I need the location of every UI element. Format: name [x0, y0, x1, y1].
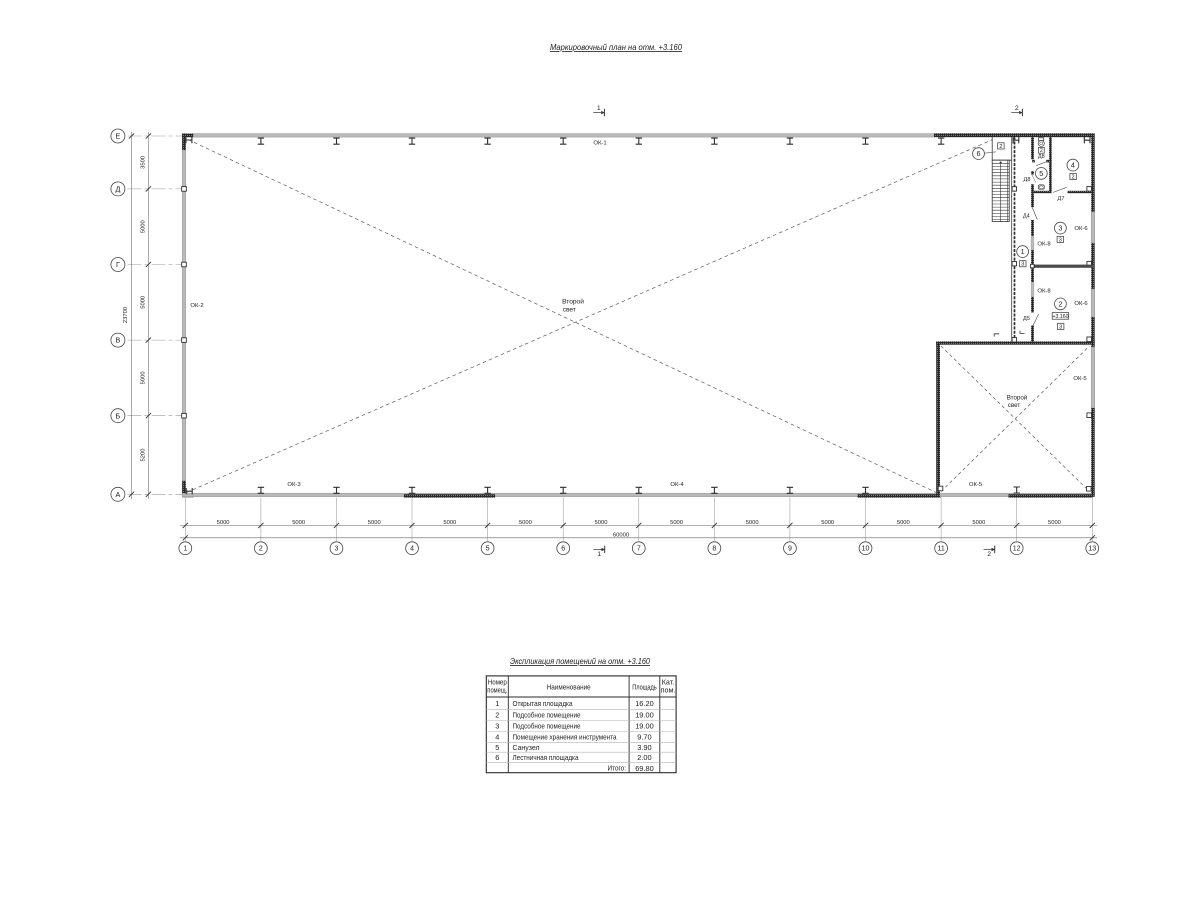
svg-text:Е: Е — [116, 132, 121, 141]
svg-text:Маркировочный план на отм. +3.: Маркировочный план на отм. +3.160 — [550, 43, 682, 52]
svg-text:2: 2 — [999, 144, 1002, 150]
svg-text:ОК-2: ОК-2 — [190, 303, 203, 309]
svg-text:Д7: Д7 — [1058, 196, 1065, 202]
svg-text:10: 10 — [862, 546, 870, 553]
svg-text:Лестничная площадка: Лестничная площадка — [513, 753, 580, 762]
svg-text:5000: 5000 — [519, 520, 532, 526]
svg-text:5000: 5000 — [140, 371, 146, 384]
svg-text:ОК-8: ОК-8 — [1037, 242, 1051, 248]
svg-text:8: 8 — [712, 546, 716, 553]
svg-text:Д4: Д4 — [1023, 213, 1030, 219]
svg-text:Г: Г — [116, 260, 120, 269]
svg-text:2: 2 — [259, 546, 263, 553]
svg-text:Площадь: Площадь — [632, 683, 657, 692]
svg-text:5000: 5000 — [897, 520, 910, 526]
svg-text:Подсобное помещение: Подсобное помещение — [513, 711, 581, 720]
svg-text:3: 3 — [495, 722, 499, 731]
svg-text:6: 6 — [495, 753, 499, 762]
svg-text:5000: 5000 — [217, 520, 230, 526]
svg-text:1: 1 — [183, 546, 187, 553]
svg-text:Д5: Д5 — [1023, 316, 1030, 322]
svg-text:ОК-6: ОК-6 — [1074, 226, 1088, 232]
svg-text:19.00: 19.00 — [635, 722, 654, 731]
svg-text:5000: 5000 — [746, 520, 759, 526]
svg-text:13: 13 — [1088, 546, 1096, 553]
svg-text:4: 4 — [1071, 161, 1075, 170]
svg-text:3: 3 — [1059, 237, 1062, 243]
svg-text:свет: свет — [1008, 402, 1021, 409]
svg-text:Итого:: Итого: — [608, 763, 627, 772]
svg-text:ОК-5: ОК-5 — [1073, 376, 1087, 382]
svg-text:3: 3 — [1059, 324, 1062, 330]
svg-text:7: 7 — [637, 546, 641, 553]
svg-text:Д8: Д8 — [1038, 154, 1045, 160]
svg-text:5000: 5000 — [595, 520, 608, 526]
svg-text:пом.: пом. — [661, 686, 676, 695]
svg-text:ОК-8: ОК-8 — [1037, 289, 1051, 295]
svg-text:9: 9 — [788, 546, 792, 553]
svg-text:ОК-1: ОК-1 — [593, 141, 606, 147]
svg-text:ОК-5: ОК-5 — [969, 482, 983, 488]
svg-text:3: 3 — [1021, 262, 1024, 268]
svg-text:5000: 5000 — [140, 220, 146, 233]
svg-text:Экспликация помещений на отм.: Экспликация помещений на отм. +3.160 — [510, 657, 650, 666]
svg-text:5000: 5000 — [292, 520, 305, 526]
svg-text:2: 2 — [1040, 148, 1043, 154]
svg-text:Наименование: Наименование — [547, 683, 591, 692]
svg-text:2: 2 — [1072, 175, 1075, 181]
svg-text:3: 3 — [1058, 224, 1062, 233]
svg-text:9.70: 9.70 — [637, 733, 651, 742]
svg-text:ОК-6: ОК-6 — [1074, 301, 1088, 307]
svg-text:1: 1 — [495, 699, 499, 708]
svg-text:2.00: 2.00 — [637, 753, 651, 762]
svg-text:2: 2 — [495, 711, 499, 720]
svg-text:5000: 5000 — [140, 296, 146, 309]
svg-text:5000: 5000 — [1048, 520, 1061, 526]
svg-text:2: 2 — [987, 551, 991, 558]
svg-text:6: 6 — [977, 149, 981, 158]
svg-text:5000: 5000 — [670, 520, 683, 526]
svg-text:5: 5 — [1039, 169, 1043, 178]
svg-text:19.00: 19.00 — [635, 711, 654, 720]
svg-text:А: А — [116, 490, 121, 499]
svg-text:Второй: Второй — [562, 298, 584, 306]
svg-text:В: В — [116, 336, 121, 345]
svg-text:5: 5 — [486, 546, 490, 553]
svg-text:16.20: 16.20 — [635, 699, 654, 708]
svg-text:5000: 5000 — [972, 520, 985, 526]
svg-text:2: 2 — [1015, 105, 1019, 112]
svg-text:ОК-3: ОК-3 — [287, 482, 301, 488]
svg-text:23700: 23700 — [123, 307, 129, 323]
svg-text:3.90: 3.90 — [637, 743, 651, 752]
svg-text:Второй: Второй — [1007, 395, 1028, 402]
svg-text:Подсобное помещение: Подсобное помещение — [513, 722, 581, 731]
svg-text:ОК-4: ОК-4 — [670, 482, 684, 488]
svg-text:4: 4 — [495, 733, 499, 742]
svg-text:1: 1 — [1021, 247, 1025, 256]
svg-text:5200: 5200 — [140, 449, 146, 462]
svg-text:3500: 3500 — [140, 156, 146, 169]
svg-text:69.80: 69.80 — [635, 764, 654, 773]
svg-text:Помещение хранения инструмента: Помещение хранения инструмента — [513, 733, 618, 742]
svg-text:+3.160: +3.160 — [1052, 314, 1068, 320]
svg-text:6: 6 — [561, 546, 565, 553]
svg-text:5000: 5000 — [821, 520, 834, 526]
svg-text:11: 11 — [937, 546, 944, 553]
svg-text:60000: 60000 — [613, 532, 629, 538]
svg-text:5: 5 — [495, 743, 499, 752]
svg-text:3: 3 — [335, 546, 339, 553]
svg-text:Д8: Д8 — [1024, 177, 1031, 183]
svg-text:Санузел: Санузел — [513, 743, 540, 752]
svg-text:12: 12 — [1013, 546, 1021, 553]
svg-text:1: 1 — [597, 551, 601, 558]
svg-text:Д: Д — [115, 185, 120, 194]
svg-text:Открытая площадка: Открытая площадка — [513, 699, 574, 708]
svg-text:Б: Б — [116, 411, 121, 420]
svg-text:5000: 5000 — [443, 520, 456, 526]
svg-text:свет: свет — [563, 307, 576, 314]
svg-text:2: 2 — [1058, 300, 1062, 309]
svg-text:4: 4 — [410, 546, 414, 553]
svg-text:помещ.: помещ. — [487, 686, 507, 695]
svg-text:1: 1 — [597, 105, 601, 112]
svg-text:5000: 5000 — [368, 520, 381, 526]
